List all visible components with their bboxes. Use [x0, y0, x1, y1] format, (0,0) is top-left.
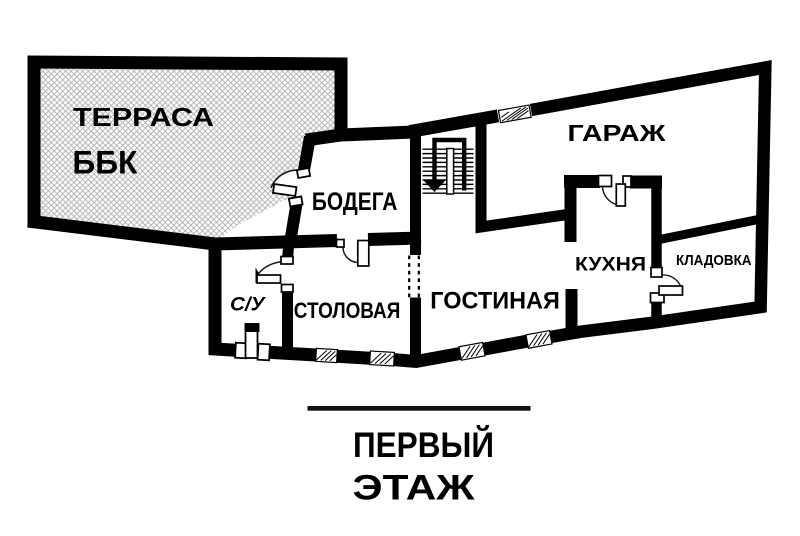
svg-text:КУХНЯ: КУХНЯ [575, 254, 646, 276]
svg-text:СТОЛОВАЯ: СТОЛОВАЯ [294, 298, 401, 323]
svg-text:ПЕРВЫЙ: ПЕРВЫЙ [353, 425, 494, 465]
svg-text:ГОСТИНАЯ: ГОСТИНАЯ [430, 288, 560, 315]
svg-text:ББК: ББК [72, 145, 137, 181]
svg-text:КЛАДОВКА: КЛАДОВКА [676, 253, 752, 269]
svg-text:ГАРАЖ: ГАРАЖ [568, 120, 667, 146]
svg-text:БОДЕГА: БОДЕГА [312, 188, 398, 216]
svg-text:С/У: С/У [230, 295, 267, 316]
svg-text:ТЕРРАСА: ТЕРРАСА [73, 102, 214, 132]
svg-text:ЭТАЖ: ЭТАЖ [353, 468, 476, 508]
